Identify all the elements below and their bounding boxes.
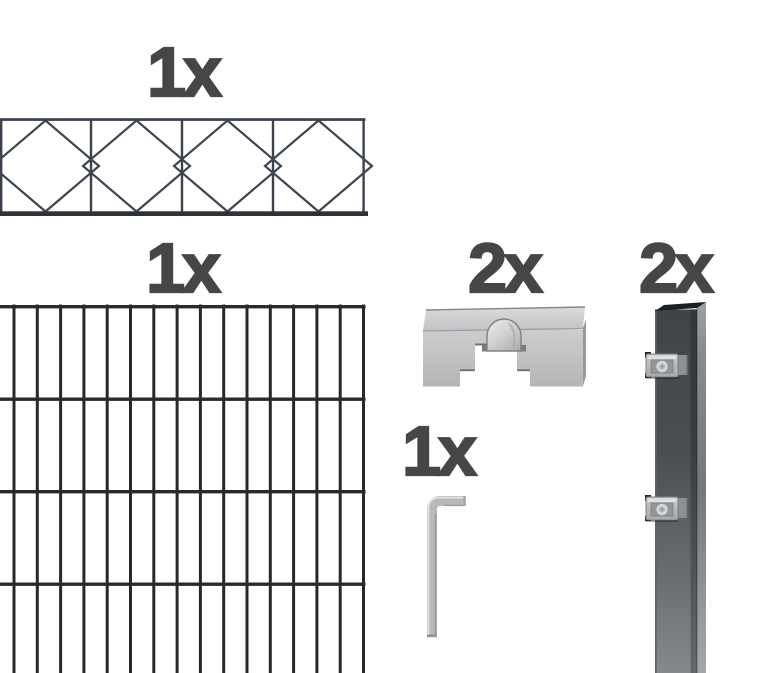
mesh-panel-count-label: 1x (146, 233, 218, 303)
mesh-vertical-bar (152, 305, 155, 673)
clamp-center-dome (487, 319, 521, 351)
clamp-body-highlight (648, 499, 677, 503)
mesh-panel-horizontal-wires (0, 305, 366, 586)
decor-panel-vertical-wires (0, 119, 365, 215)
allen-key-arm-tip (463, 496, 465, 506)
decor-panel-top-rail (0, 118, 366, 121)
mesh-vertical-bar (246, 305, 249, 673)
mesh-vertical-bar (222, 305, 225, 673)
allen-key-illustration (418, 488, 478, 640)
mesh-fence-panel-illustration (0, 303, 368, 673)
post-clamp (645, 352, 688, 379)
mesh-vertical-bar (106, 305, 109, 673)
mesh-horizontal-wire (0, 398, 366, 401)
post-clamp (645, 495, 688, 522)
post-front-shade-band (691, 309, 698, 673)
mesh-vertical-bar (129, 305, 132, 673)
clamp-right-side-face (583, 319, 586, 386)
mesh-vertical-bar (199, 305, 202, 673)
mesh-vertical-bar (269, 305, 272, 673)
clamp-screw-center (661, 365, 663, 367)
clamp-screw-center (661, 508, 663, 510)
hex-key-count-label: 1x (402, 416, 474, 486)
clamp-flange-edge (687, 498, 689, 518)
clamp-bottom-shadow (646, 377, 678, 379)
decor-panel-bottom-rail (0, 211, 368, 216)
mesh-vertical-bar (362, 305, 365, 673)
clamp-center-notch (475, 346, 517, 389)
mesh-vertical-bar (176, 305, 179, 673)
decor-panel-count-label: 1x (147, 37, 219, 107)
dome-base-shadow-left (482, 345, 487, 352)
decor-vertical-wire (272, 119, 274, 215)
dome-base-shadow-right (521, 345, 526, 352)
post-count-label: 2x (639, 233, 711, 303)
clamp-flange-edge (687, 355, 689, 375)
fence-kit-contents-image: 1x 1x 2x 1x 2x (0, 0, 769, 673)
mesh-vertical-bar (292, 305, 295, 673)
post-side-face (697, 302, 706, 673)
decor-vertical-wire (0, 119, 2, 215)
allen-key-shaft-tip (427, 635, 437, 638)
mesh-horizontal-wire (0, 490, 366, 493)
mesh-vertical-bar (315, 305, 318, 673)
clamp-left-step-shadow (460, 369, 475, 371)
decor-vertical-wire (181, 119, 183, 215)
clamp-right-step-notch (517, 371, 530, 389)
clamp-right-step-shadow (517, 369, 530, 371)
clamp-left-step-notch (460, 371, 475, 389)
fence-post-illustration (640, 295, 720, 673)
mesh-vertical-bar (13, 305, 16, 673)
mesh-vertical-bar (59, 305, 62, 673)
decorative-diamond-panel-illustration (0, 116, 376, 218)
clamp-bottom-shadow (646, 520, 678, 522)
allen-key-body (432, 501, 465, 637)
cover-clamp-illustration (420, 300, 590, 395)
mesh-panel-vertical-bars (13, 305, 366, 673)
decor-vertical-wire (90, 119, 92, 215)
clamp-body-highlight (648, 356, 677, 360)
mesh-horizontal-wire (0, 583, 366, 586)
mesh-vertical-bar (36, 305, 39, 673)
decor-panel-diamond-wires (0, 121, 372, 212)
decor-vertical-wire (362, 119, 364, 215)
mesh-horizontal-wire (0, 305, 366, 308)
mesh-vertical-bar (82, 305, 85, 673)
mesh-vertical-bar (339, 305, 342, 673)
cover-clamp-count-label: 2x (468, 233, 540, 303)
